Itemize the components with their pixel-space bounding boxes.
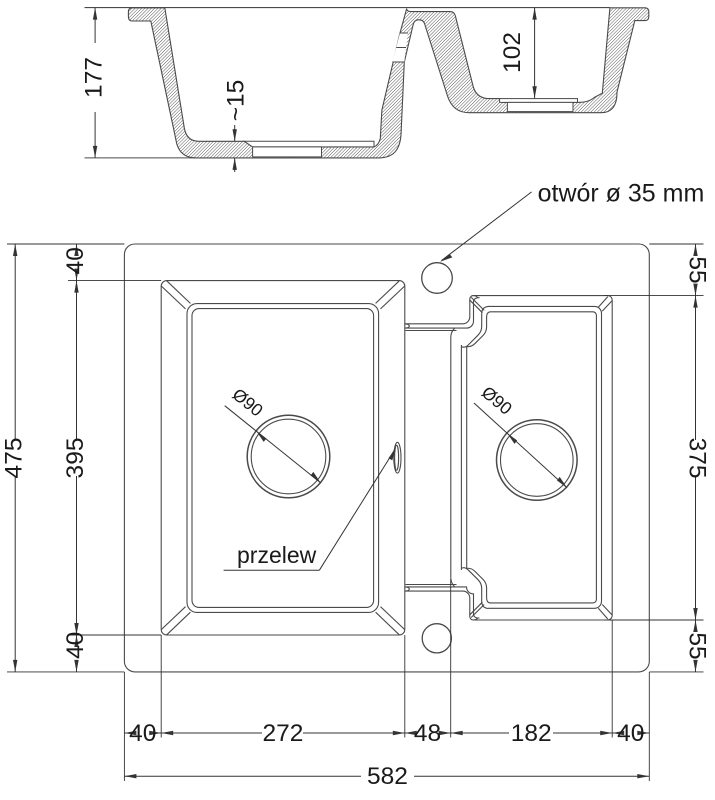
svg-text:40: 40 [617, 720, 644, 747]
svg-text:582: 582 [367, 763, 408, 790]
svg-text:40: 40 [62, 247, 89, 274]
svg-text:102: 102 [499, 32, 526, 73]
svg-text:Ø90: Ø90 [478, 382, 516, 419]
svg-text:40: 40 [62, 632, 89, 659]
svg-text:55: 55 [683, 632, 710, 659]
svg-text:375: 375 [683, 438, 710, 479]
svg-text:395: 395 [62, 438, 89, 479]
svg-text:48: 48 [414, 720, 441, 747]
svg-text:40: 40 [129, 720, 156, 747]
svg-text:182: 182 [511, 720, 552, 747]
svg-text:otwór ø 35 mm: otwór ø 35 mm [538, 180, 705, 208]
svg-text:272: 272 [263, 720, 304, 747]
svg-text:Ø90: Ø90 [229, 384, 268, 421]
svg-text:przelew: przelew [237, 542, 317, 568]
svg-text:~15: ~15 [223, 80, 250, 122]
svg-text:475: 475 [1, 438, 28, 479]
svg-text:55: 55 [683, 256, 710, 283]
svg-text:177: 177 [81, 57, 108, 98]
